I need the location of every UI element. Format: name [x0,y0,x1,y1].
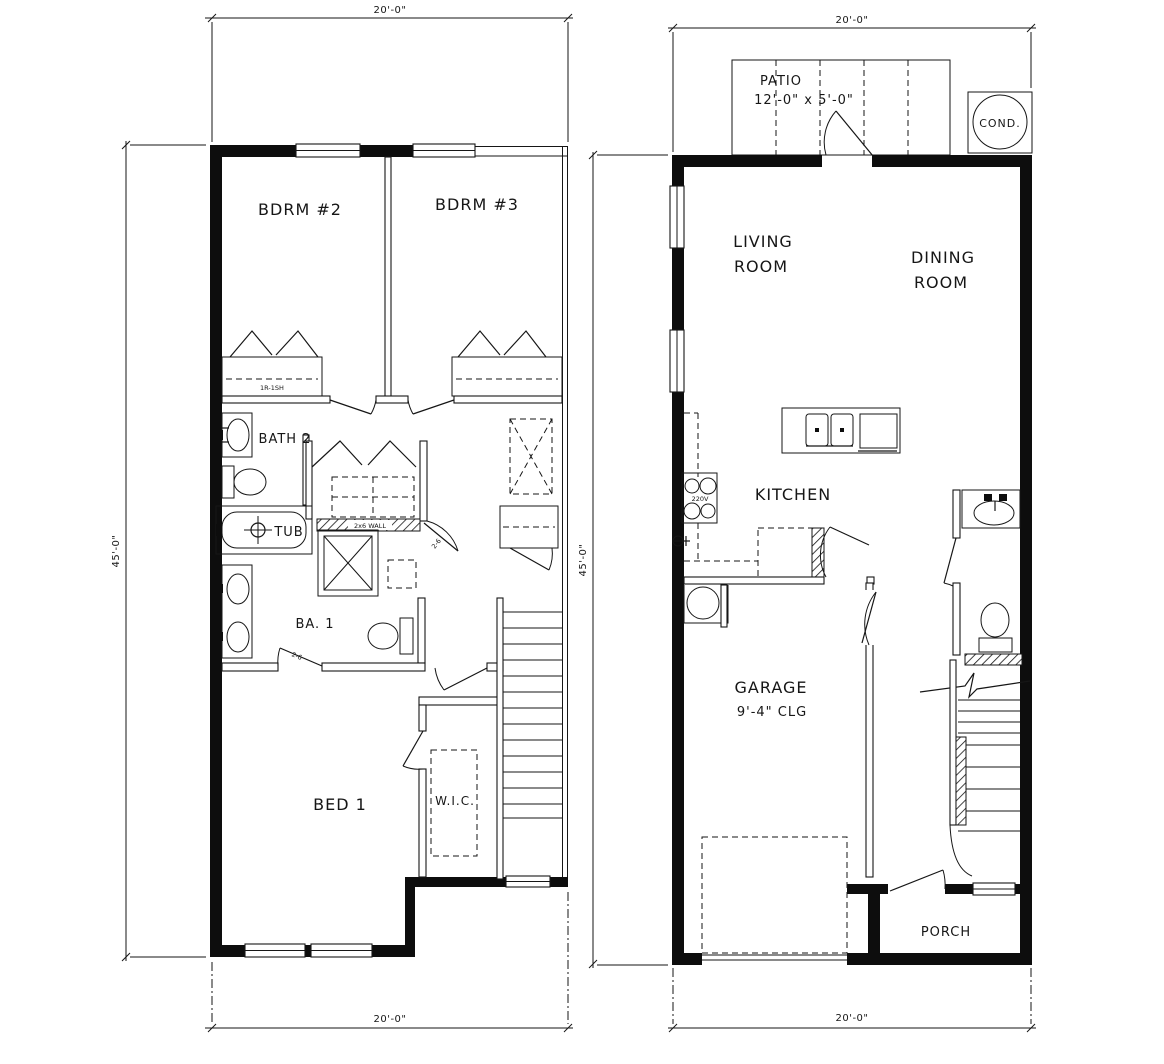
garage-wall-and-door [862,583,876,877]
wall-note-label: 2x6 WALL [354,522,386,530]
water-heater [684,585,728,627]
window-left-1 [670,186,684,248]
living-room-label-1: LIVING [733,232,793,251]
shelf-hatch [965,654,1022,665]
two-by-six-wall: 2x6 WALL [317,519,420,531]
kitchen-wall-stub [812,528,824,578]
range: 220V [682,473,717,523]
patio-size-label: 12'-0" x 5'-0" [754,93,854,108]
window-top-1 [296,144,360,157]
window-left-2 [670,330,684,392]
ba1-shower [318,530,378,596]
floor1-dim-top: 20'-0" [668,15,1036,152]
bdrm2-label: BDRM #2 [258,200,342,219]
attic-access-cabinet [510,419,552,494]
ba1-door-size-label: 2-6 [290,650,303,661]
floor2-dim-bottom: 20'-0" [205,892,573,1032]
bed1-door [435,668,487,690]
floor1-dim-left: 45'-0" [578,151,668,968]
half-bath-toilet [981,603,1009,637]
stair-closet [500,506,558,570]
window-porch [973,883,1015,895]
linen-cabinet [388,560,416,588]
garage-door [702,837,847,953]
bdrm3-closet [452,331,562,396]
range-voltage-label: 220V [692,495,709,503]
bdrm2-door [330,400,376,414]
hall-door-size-label: 2-6 [430,537,443,550]
window-top-2 [413,144,475,157]
kitchen-island [782,408,900,453]
closet-note-label: 1R-1SH [260,384,284,392]
dining-room-label-2: ROOM [914,273,968,292]
floor2-windows [245,144,550,957]
floor2-dim-left: 45'-0" [111,141,206,961]
hall-door: 2-6 [424,521,458,551]
floor2-dim-bottom-label: 20'-0" [373,1014,406,1025]
tub-label: TUB [273,525,303,540]
window-stair-landing [506,876,550,887]
hall-shelf-cabinet [332,477,414,517]
bath2-tub: TUB [216,506,312,554]
floor-plan-svg: 1R-1SH [0,0,1164,1064]
bed1-label: BED 1 [313,795,367,814]
floor1-exterior-walls [672,155,1032,965]
kitchen-label: KITCHEN [755,485,831,504]
window-bottom-1 [245,944,305,957]
kitchen-counter [684,413,758,561]
garage-label: GARAGE [735,678,808,697]
floor1-dim-top-label: 20'-0" [835,15,868,26]
refrigerator-space [758,528,812,578]
dining-room-label-1: DINING [911,248,975,267]
half-bath [944,490,1022,665]
first-floor-plan: PATIO 12'-0" x 5'-0" COND. [578,15,1036,1032]
porch-label: PORCH [921,925,971,940]
floor1-dim-bottom-label: 20'-0" [835,1013,868,1024]
ba1-toilet [368,618,413,654]
floor2-stairs [497,598,562,879]
kitchen-garage-wall [684,527,874,584]
bdrm3-door [408,400,454,414]
bath2-toilet [222,466,266,498]
condenser-unit: COND. [968,92,1032,153]
dishwasher [860,414,897,448]
floor2-dim-left-label: 45'-0" [111,534,122,567]
cond-label: COND. [979,117,1021,130]
hall-bifold-doors [312,441,416,467]
patio: PATIO 12'-0" x 5'-0" [732,60,950,155]
patio-label: PATIO [760,74,802,89]
second-floor-plan: 1R-1SH [111,5,573,1032]
floor1-dim-bottom: 20'-0" [668,968,1036,1032]
bdrm2-closet: 1R-1SH [222,331,322,396]
floor2-dim-top-label: 20'-0" [373,5,406,16]
bath2-label: BATH 2 [259,432,312,447]
ba1-label: BA. 1 [295,617,334,632]
living-room-label-2: ROOM [734,257,788,276]
patio-door [824,111,873,156]
floor-plan-drawing: 1R-1SH [0,0,1164,1064]
garage-ceiling-label: 9'-4" CLG [737,705,807,720]
ba1-door: 2-6 [278,648,322,666]
front-door [890,870,945,891]
bdrm3-label: BDRM #3 [435,195,519,214]
floor2-dim-top: 20'-0" [205,5,573,142]
floor1-stairs [920,660,1030,876]
wic-label: W.I.C. [435,794,475,808]
floor1-dim-left-label: 45'-0" [578,543,589,576]
break-line [920,673,1030,697]
window-bottom-2 [311,944,372,957]
